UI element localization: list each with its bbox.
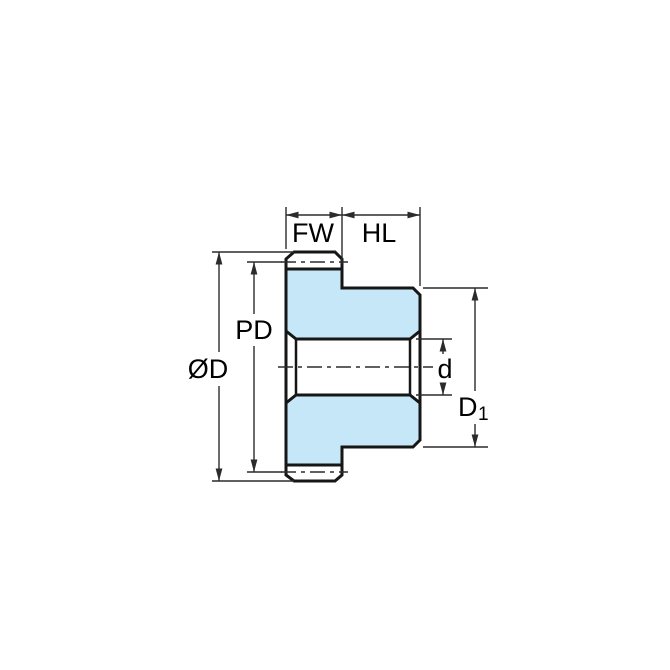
tooth-profile-top	[286, 252, 342, 269]
hl-label: HL	[362, 218, 397, 248]
diagram-canvas: FW HL ØD PD d	[0, 0, 670, 670]
tooth-profile-bottom	[286, 465, 342, 481]
od-label: ØD	[188, 354, 229, 384]
d1-label-subscript: 1	[478, 404, 489, 425]
gear-dimension-diagram: FW HL ØD PD d	[0, 0, 670, 670]
fw-label: FW	[292, 218, 334, 248]
d-label: d	[437, 354, 452, 384]
d1-label-main: D	[458, 392, 478, 422]
pd-label: PD	[235, 315, 273, 345]
